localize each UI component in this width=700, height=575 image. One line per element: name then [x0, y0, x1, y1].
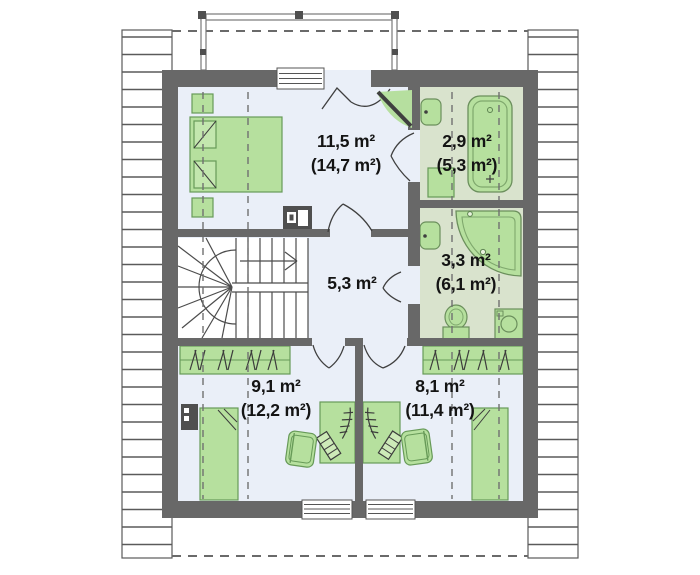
room-total-area: (5,3 m²) [437, 153, 498, 177]
wardrobe-icon [180, 346, 290, 374]
toilet-icon [443, 305, 469, 340]
room-area: 11,5 m² [311, 129, 381, 153]
desk-icon [363, 402, 403, 463]
room-area: 2,9 m² [437, 129, 498, 153]
room-label-bedroom: 11,5 m² (14,7 m²) [311, 129, 381, 177]
room-total-area: (12,2 m²) [241, 398, 311, 422]
room-total-area: (11,4 m²) [405, 398, 474, 422]
window-icon [277, 68, 324, 89]
desk-chair-icon [401, 428, 433, 466]
room-label-bedroom-left: 9,1 m² (12,2 m²) [241, 374, 311, 422]
room-label-bathroom-upper: 2,9 m² (5,3 m²) [437, 129, 498, 177]
washbasin-icon [421, 99, 441, 125]
floor-plan: 11,5 m² (14,7 m²) 2,9 m² (5,3 m²) 3,3 m²… [0, 0, 700, 575]
room-area: 5,3 m² [327, 271, 376, 295]
desk-icon [317, 402, 355, 463]
window-icon [302, 500, 352, 519]
room-area: 9,1 m² [241, 374, 311, 398]
room-label-bedroom-right: 8,1 m² (11,4 m²) [405, 374, 474, 422]
double-bed-icon [190, 117, 282, 192]
window-icon [366, 500, 415, 519]
room-area: 8,1 m² [405, 374, 474, 398]
floor-balcony-doorway [324, 70, 371, 87]
room-area: 3,3 m² [436, 248, 497, 272]
single-bed-icon [200, 408, 238, 500]
room-label-bathroom-lower: 3,3 m² (6,1 m²) [436, 248, 497, 296]
single-bed-icon [472, 408, 508, 500]
room-label-hall: 5,3 m² [327, 271, 376, 295]
dresser-icon [283, 206, 312, 231]
radiator-icon [181, 404, 198, 430]
desk-chair-icon [285, 430, 317, 468]
room-total-area: (6,1 m²) [436, 272, 497, 296]
washbasin-icon [420, 222, 440, 249]
room-total-area: (14,7 m²) [311, 153, 381, 177]
wardrobe-icon [423, 346, 523, 374]
staircase-icon [178, 238, 308, 338]
balcony-railing [198, 11, 399, 70]
